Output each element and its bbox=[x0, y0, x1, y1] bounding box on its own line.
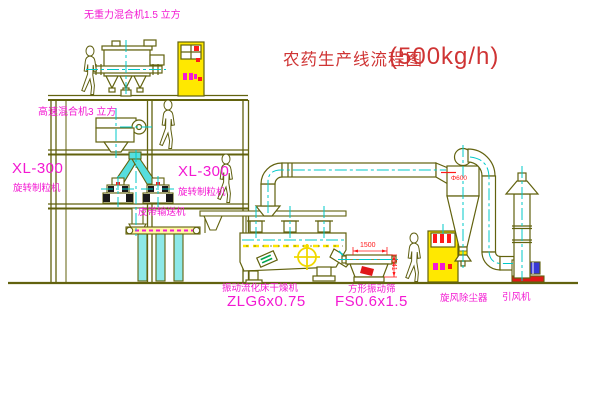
belt-conveyor-label: 皮带输送机 bbox=[138, 208, 186, 218]
flow-diagram-canvas: 无重力混合机1.5 立方 农药生产线流程图 (500kg/h) 高速混合机3 立… bbox=[0, 0, 600, 403]
person-figure bbox=[406, 233, 421, 282]
conveyor-leg bbox=[138, 234, 147, 281]
gravity-mixer-label: 无重力混合机1.5 立方 bbox=[84, 11, 181, 21]
granulator-right-model-label: XL-300 bbox=[178, 164, 229, 179]
high-speed-mixer bbox=[96, 118, 146, 152]
cyclone-label: 旋风除尘器 bbox=[440, 294, 488, 304]
conveyor-leg bbox=[174, 234, 183, 281]
floor-1 bbox=[48, 96, 248, 101]
diagram-title-capacity: (500kg/h) bbox=[389, 45, 499, 69]
belt-conveyor bbox=[126, 227, 200, 281]
cyclone-dia-text: Φ600 bbox=[451, 176, 467, 183]
dryer-model-label: ZLG6x0.75 bbox=[227, 294, 306, 309]
dimension-541-text: 541 bbox=[390, 259, 397, 271]
person-figure bbox=[160, 100, 175, 149]
exhaust-hood-duct bbox=[256, 163, 448, 216]
high-speed-mixer-label: 高速混合机3 立方 bbox=[38, 108, 116, 118]
bucket-elevator-2 bbox=[428, 231, 458, 282]
fan-label: 引风机 bbox=[502, 293, 531, 303]
granulator-right-name-label: 旋转制粒机 bbox=[178, 188, 226, 198]
person-figure bbox=[82, 46, 97, 95]
bucket-elevator-1 bbox=[178, 42, 204, 96]
fluid-bed-dryer bbox=[240, 221, 352, 283]
granulator-left-name-label: 旋转制粒机 bbox=[13, 184, 61, 194]
square-vibrating-sieve bbox=[342, 247, 397, 282]
dimension-1500-text: 1500 bbox=[360, 242, 376, 249]
elevator-glyphs-icon bbox=[183, 73, 197, 80]
conveyor-leg bbox=[156, 234, 165, 281]
gravity-mixer bbox=[90, 40, 164, 96]
granulator-left-model-label: XL-300 bbox=[12, 161, 63, 176]
sieve-model-label: FS0.6x1.5 bbox=[335, 294, 408, 309]
